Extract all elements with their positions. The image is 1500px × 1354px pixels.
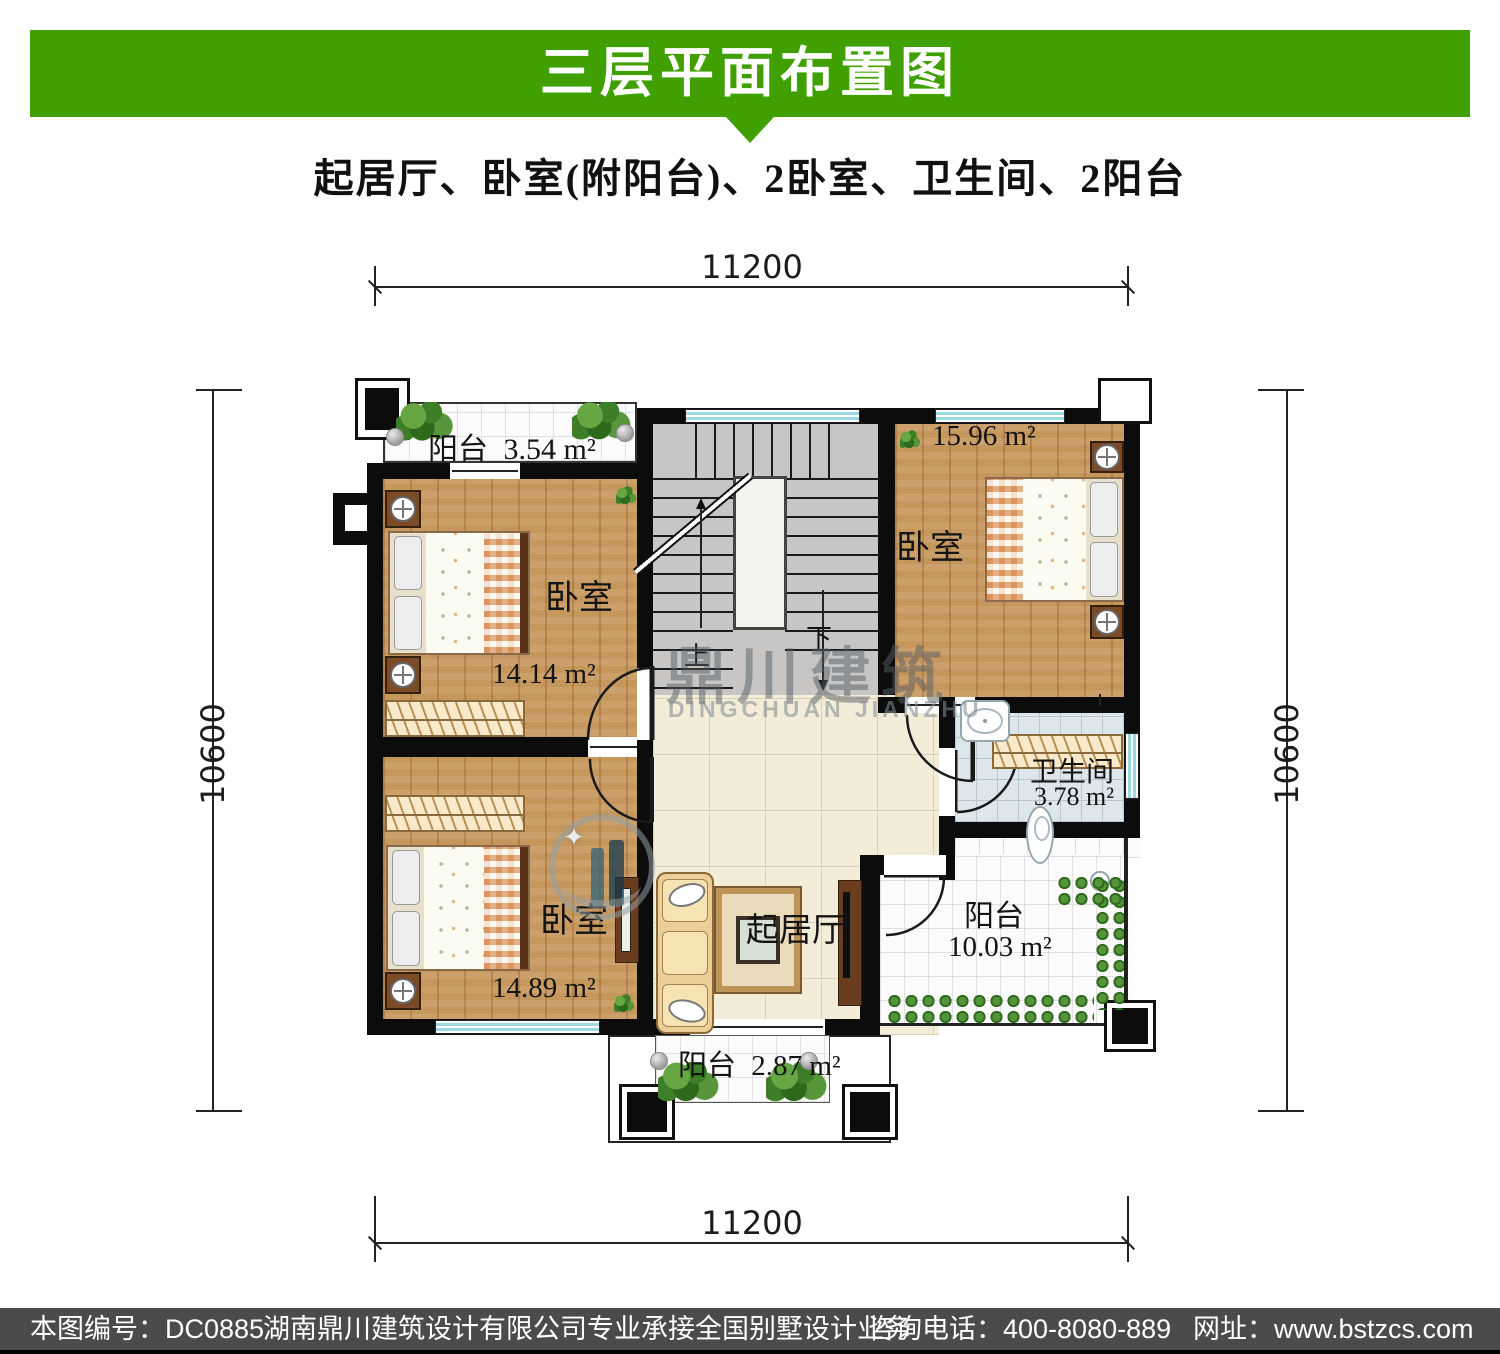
- tv-bedroom-b: [621, 888, 631, 952]
- lamp-icon: [1094, 444, 1120, 470]
- dim-tick: [1127, 1196, 1129, 1262]
- plant: [900, 430, 920, 450]
- sofa-cushion: [662, 931, 707, 974]
- banner-pointer-icon: [726, 117, 774, 143]
- dim-label-right: 10600: [1268, 689, 1306, 819]
- wardrobe-bedroom-b: [385, 795, 525, 832]
- footer-bar: 本图编号：DC0885 湖南鼎川建筑设计有限公司专业承接全国别墅设计业务 咨询电…: [0, 1308, 1500, 1350]
- bed-pillows: [388, 847, 424, 969]
- pillow: [392, 911, 420, 967]
- wall-living-right: [860, 855, 880, 1035]
- plant: [614, 994, 634, 1014]
- pillar-bottom-right-core: [1112, 1008, 1148, 1044]
- wardrobe-bedroom-a: [385, 700, 525, 737]
- lamp-icon: [390, 978, 416, 1004]
- footer-drawing-code: 本图编号：DC0885: [30, 1308, 264, 1350]
- room-name: 阳台: [678, 1050, 736, 1082]
- bed-bedroom-c: [985, 477, 1124, 602]
- balcony-bottom-edge: [880, 1023, 1128, 1026]
- pillow: [1090, 482, 1118, 537]
- lamp-icon: [1094, 609, 1120, 635]
- dim-tick: [196, 389, 242, 391]
- room-area: 3.54 m²: [504, 433, 596, 466]
- stair-up-label: 上: [684, 636, 710, 673]
- pillow: [394, 536, 422, 591]
- stair-arrow-down-head: [818, 680, 828, 691]
- sink: [960, 700, 1010, 742]
- bed-pillows: [1086, 479, 1122, 600]
- pillow: [1090, 542, 1118, 597]
- room-label-living: 起居厅: [746, 903, 845, 951]
- room-area-bedroom-c: 15.96 m²: [932, 420, 1036, 453]
- room-label-bedroom-a: 卧室: [545, 570, 613, 619]
- footer-edge: [0, 1350, 1500, 1354]
- pillar-top-left-core: [365, 388, 399, 430]
- lamp-icon: [390, 662, 416, 688]
- bed-footboard: [520, 847, 528, 969]
- room-label-balcony-right: 阳台: [964, 891, 1024, 935]
- window-bedroom-b-bottom: [435, 1020, 600, 1034]
- bed-blanket: [987, 479, 1023, 600]
- dim-line-top: [375, 286, 1128, 288]
- room-label-bedroom-c: 卧室: [896, 520, 964, 569]
- window-stairs-top: [685, 409, 860, 423]
- window-bathroom: [1125, 733, 1139, 799]
- balcony-right-edge: [1124, 838, 1128, 1025]
- footer-phone: 咨询电话：400-8080-889: [868, 1308, 1171, 1350]
- bed-blanket: [484, 847, 520, 969]
- dim-tick: [1258, 389, 1304, 391]
- dim-label-top: 11200: [690, 248, 814, 286]
- room-area-bedroom-a: 14.14 m²: [492, 658, 596, 691]
- room-label-bedroom-b: 卧室: [540, 893, 608, 942]
- stair-down-label: 下: [806, 618, 832, 655]
- dim-tick: [196, 1110, 242, 1112]
- wall-corner: [637, 408, 653, 463]
- planter-ball: [650, 1052, 668, 1070]
- title-banner: 三层平面布置图: [30, 30, 1470, 117]
- door-arc-balcony-right: [884, 875, 946, 937]
- room-area-bedroom-b: 14.89 m²: [492, 972, 596, 1005]
- page-subtitle: 起居厅、卧室(附阳台)、2卧室、卫生间、2阳台: [0, 146, 1500, 204]
- footer-website: 网址：www.bstzcs.com: [1193, 1308, 1474, 1350]
- nightstand: [1090, 441, 1124, 473]
- nightstand: [1090, 605, 1124, 639]
- room-name: 阳台: [428, 433, 488, 466]
- door-arc-bedroom-b: [588, 757, 654, 824]
- pillar-top-right: [1098, 378, 1152, 424]
- stair-treads-top: [695, 424, 845, 478]
- dim-label-left: 10600: [194, 689, 232, 819]
- wall-notch: [345, 505, 367, 531]
- room-area: 2.87 m²: [751, 1050, 840, 1082]
- nightstand: [385, 490, 421, 528]
- wall-bedroom-c-right: [1124, 408, 1140, 713]
- dim-label-bottom: 11200: [690, 1204, 814, 1242]
- nightstand: [385, 972, 421, 1010]
- shower-hose: [1099, 694, 1101, 706]
- bed-duvet: [426, 533, 484, 653]
- room-label-balcony-top: 阳台 3.54 m²: [428, 424, 596, 468]
- sink-bowl: [967, 708, 1002, 734]
- floorplan-page: 三层平面布置图 起居厅、卧室(附阳台)、2卧室、卫生间、2阳台 11200 11…: [0, 0, 1500, 1354]
- stair-landing: [733, 476, 787, 630]
- door-threshold: [452, 470, 518, 472]
- footer-company: 湖南鼎川建筑设计有限公司专业承接全国别墅设计业务: [263, 1308, 911, 1350]
- door-opening: [884, 855, 946, 875]
- nightstand: [385, 656, 421, 694]
- bed-duvet: [1023, 479, 1086, 600]
- hedge-bottom: [886, 993, 1094, 1023]
- wall-left-lower: [367, 750, 383, 1035]
- plant: [616, 486, 636, 506]
- bed-pillows: [390, 533, 426, 653]
- pillow: [394, 596, 422, 651]
- door-arc-bedroom-a: [586, 666, 656, 742]
- stair-arrow-up-head: [696, 498, 706, 509]
- room-area-bathroom: 3.78 m²: [1034, 782, 1114, 812]
- room-area-balcony-right: 10.03 m²: [948, 931, 1052, 964]
- planter-ball: [616, 424, 634, 442]
- wall-right-of-bedrooms: [637, 463, 653, 1035]
- bed-blanket: [484, 533, 520, 653]
- hedge-corner: [1056, 875, 1124, 907]
- bed-bedroom-a: [388, 531, 530, 655]
- dim-tick: [1258, 1110, 1304, 1112]
- dim-line-bottom: [375, 1242, 1128, 1244]
- lamp-icon: [390, 496, 416, 522]
- pillow: [392, 850, 420, 906]
- planter-ball: [386, 428, 404, 446]
- stair-arrow-up-line: [700, 508, 702, 628]
- bed-footboard: [520, 533, 528, 653]
- room-label-balcony-bottom: 阳台 2.87 m²: [678, 1042, 841, 1084]
- dim-tick: [374, 1196, 376, 1262]
- bed-duvet: [424, 847, 484, 969]
- page-title: 三层平面布置图: [30, 30, 1470, 117]
- wall-right-of-stairs: [878, 408, 895, 695]
- bed-bedroom-b: [386, 845, 530, 971]
- pillar-terrace-right-core: [850, 1092, 890, 1132]
